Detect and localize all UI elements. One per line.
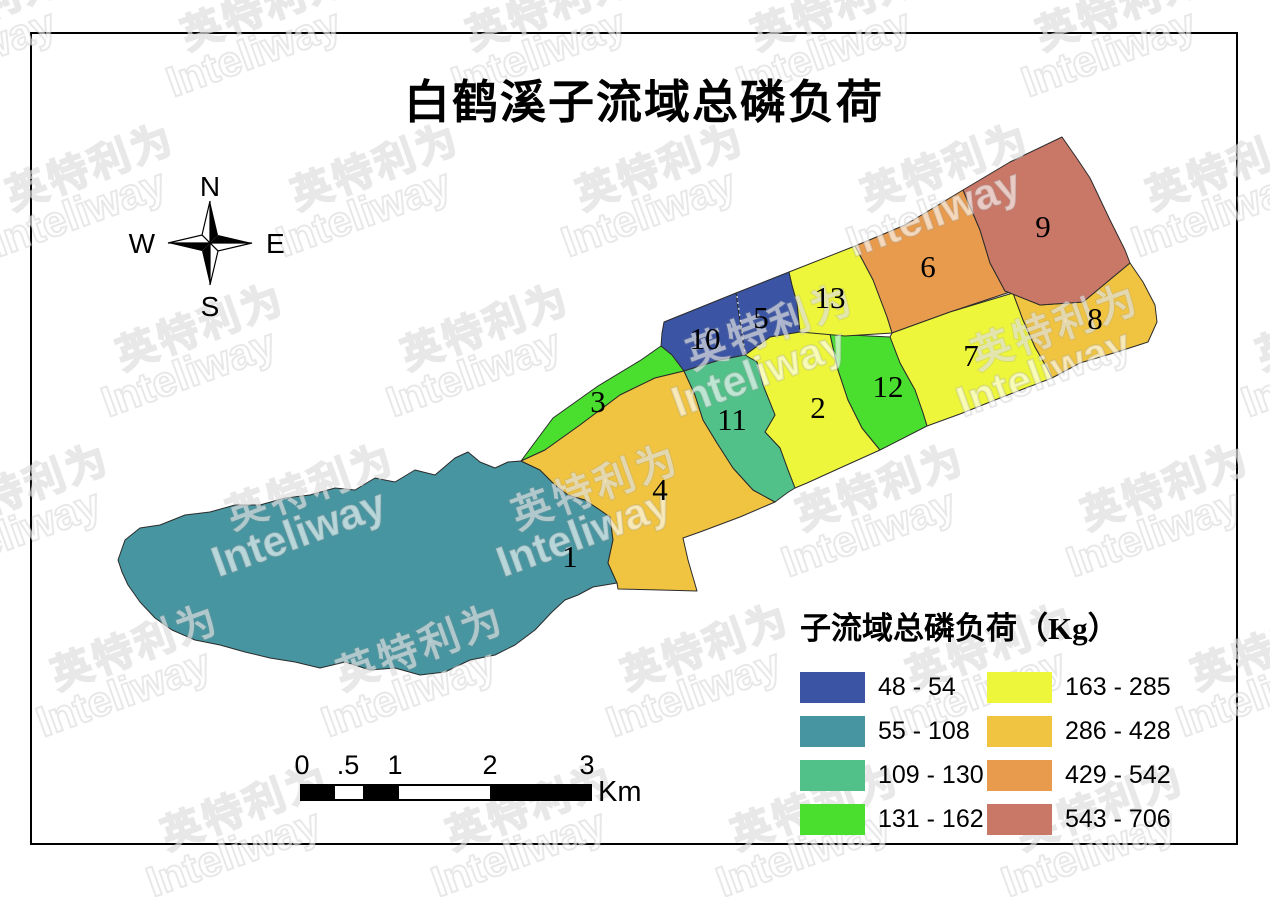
- legend-swatch: [800, 760, 865, 791]
- legend-item: 429 - 542: [987, 753, 1171, 797]
- legend: 子流域总磷负荷（Kg） 48 - 5455 - 108109 - 130131 …: [800, 603, 1171, 841]
- scale-tick-label: 0: [294, 750, 309, 781]
- scale-tick-label: .5: [337, 750, 360, 781]
- scale-segment: [302, 786, 333, 799]
- page-title: 白鹤溪子流域总磷负荷: [40, 66, 1248, 132]
- legend-label: 131 - 162: [878, 805, 984, 834]
- legend-item: 109 - 130: [800, 753, 987, 797]
- map-page: 英特利为Inteliway英特利为Inteliway英特利为Inteliway英…: [0, 0, 1270, 897]
- scale-unit: Km: [598, 776, 642, 809]
- legend-label: 429 - 542: [1065, 761, 1171, 790]
- legend-label: 55 - 108: [878, 717, 970, 746]
- legend-item: 286 - 428: [987, 709, 1171, 753]
- legend-swatch: [987, 672, 1052, 703]
- legend-swatch: [987, 760, 1052, 791]
- legend-title: 子流域总磷负荷（Kg）: [800, 603, 1171, 648]
- scale-segment: [397, 786, 492, 799]
- legend-swatch: [800, 672, 865, 703]
- legend-swatch: [987, 804, 1052, 835]
- scale-tick-label: 1: [387, 750, 402, 781]
- legend-item: 48 - 54: [800, 665, 987, 709]
- legend-label: 163 - 285: [1065, 673, 1171, 702]
- legend-swatch: [800, 804, 865, 835]
- legend-label: 543 - 706: [1065, 805, 1171, 834]
- scale-segment: [492, 786, 590, 799]
- scale-bar-segments: [300, 784, 592, 801]
- legend-item: 55 - 108: [800, 709, 987, 753]
- legend-col-left: 48 - 5455 - 108109 - 130131 - 162: [800, 665, 987, 841]
- legend-columns: 48 - 5455 - 108109 - 130131 - 162 163 - …: [800, 665, 1171, 841]
- legend-label: 109 - 130: [878, 761, 984, 790]
- scale-bar: 0 .5 1 2 3 Km: [300, 750, 640, 806]
- legend-col-right: 163 - 285286 - 428429 - 542543 - 706: [987, 665, 1171, 841]
- legend-item: 163 - 285: [987, 665, 1171, 709]
- scale-tick-label: 2: [482, 750, 497, 781]
- legend-swatch: [987, 716, 1052, 747]
- legend-item: 543 - 706: [987, 797, 1171, 841]
- legend-label: 48 - 54: [878, 673, 956, 702]
- legend-item: 131 - 162: [800, 797, 987, 841]
- map-region-1: [118, 452, 617, 675]
- legend-label: 286 - 428: [1065, 717, 1171, 746]
- legend-swatch: [800, 716, 865, 747]
- scale-segment: [365, 786, 397, 799]
- scale-segment: [333, 786, 365, 799]
- scale-tick-label: 3: [579, 750, 594, 781]
